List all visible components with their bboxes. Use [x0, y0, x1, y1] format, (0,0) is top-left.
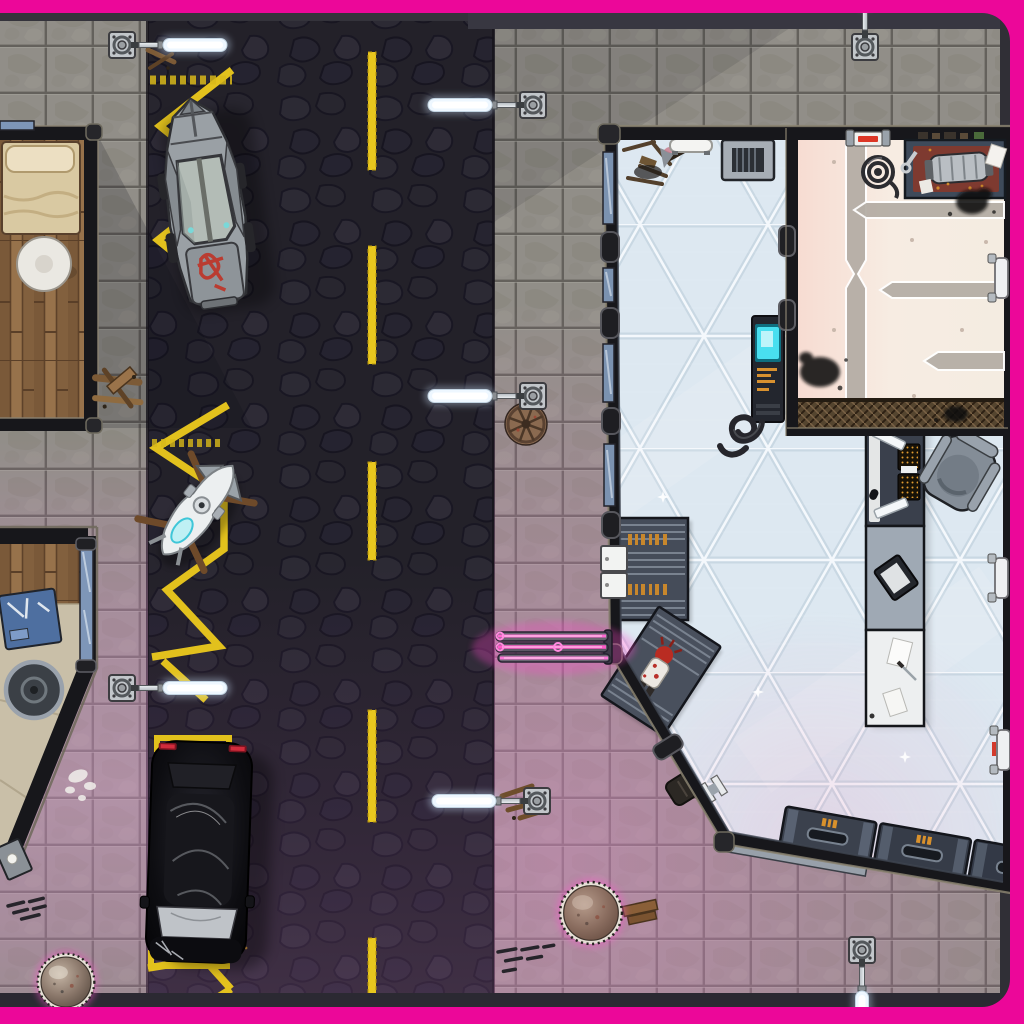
- road-center-dash: [368, 938, 376, 996]
- battle-map-canvas: [0, 0, 1024, 1024]
- white-bench: [670, 139, 712, 155]
- shelf-rack-a: [617, 518, 692, 623]
- tool-row: [918, 132, 984, 139]
- window-strip: [80, 546, 93, 664]
- street-lamp-3: [424, 383, 546, 409]
- floor-accent-bar: [846, 142, 866, 420]
- dome-rust-tint: [564, 886, 618, 940]
- floor-grate: [798, 400, 1004, 428]
- machine-annex-room: [779, 128, 1016, 436]
- battle-map: [0, 0, 1024, 1024]
- apartment-room-building: [0, 121, 102, 433]
- annex-door: [846, 130, 890, 146]
- window-strip: [0, 121, 34, 130]
- engine-canister: [929, 152, 989, 184]
- street-lamp-1: [109, 32, 231, 58]
- road-center-dash: [368, 52, 376, 170]
- cyan-console: [752, 316, 784, 422]
- black-suv: [138, 740, 275, 970]
- vent-crate: [722, 140, 774, 180]
- road-center-dash: [368, 462, 376, 560]
- blue-tool-desk: [0, 588, 62, 649]
- manhole-dome-1: [34, 950, 97, 1013]
- pillow: [6, 146, 74, 172]
- road-center-dash: [368, 246, 376, 364]
- street-lamp-5: [428, 788, 550, 814]
- neon-bench: [472, 621, 636, 675]
- keyboard: [900, 476, 918, 498]
- street-lamp-2: [424, 92, 546, 118]
- white-door: [601, 546, 627, 598]
- street-lamp-4: [109, 675, 231, 701]
- workbench: [902, 140, 1007, 198]
- workstation-desk: [866, 424, 930, 728]
- road-center-dash: [368, 710, 376, 822]
